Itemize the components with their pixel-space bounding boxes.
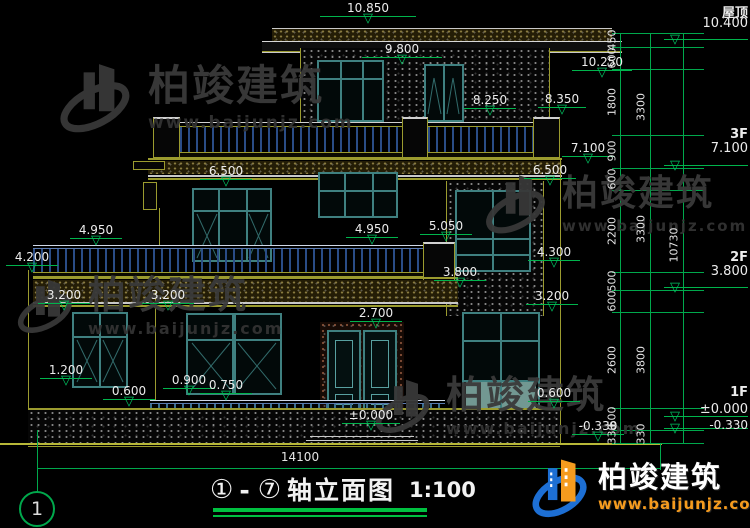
elevation-marker: 2.700▽ xyxy=(350,307,402,322)
dim-tick xyxy=(612,290,704,291)
slab-2f-topline xyxy=(148,158,562,160)
dim-value: 3800 xyxy=(635,346,648,374)
ground-line-2 xyxy=(28,446,560,447)
elevation-triangle-icon: ▽ xyxy=(397,53,407,66)
elevation-triangle-icon: ▽ xyxy=(367,233,377,246)
window-transom xyxy=(320,190,396,192)
watermark: 柏竣建筑 www.baijunjz.com xyxy=(16,272,283,342)
elevation-marker: 3.200▽ xyxy=(526,290,578,305)
elevation-marker: 9.800▽ xyxy=(362,43,442,58)
watermark-url: www.baijunjz.com xyxy=(88,319,283,338)
elevation-triangle-icon: ▽ xyxy=(221,389,231,402)
title-underline-thin xyxy=(213,515,427,517)
railing-pillar xyxy=(533,117,560,158)
elevation-triangle-icon: ▽ xyxy=(59,299,69,312)
elevation-triangle-icon: ▽ xyxy=(184,384,194,397)
wall-edge-line xyxy=(159,208,160,245)
elevation-triangle-icon: ▽ xyxy=(670,159,680,172)
elevation-marker: 1.200▽ xyxy=(40,364,92,379)
dim-value: 3300 xyxy=(635,215,648,243)
elevation-triangle-icon: ▽ xyxy=(371,317,381,330)
dim-value: 500 xyxy=(606,271,619,292)
level-label-1f: 1F xyxy=(698,385,748,400)
level-value-3f: 7.100▽ xyxy=(664,141,748,166)
dim-value: 330 xyxy=(635,424,648,445)
elevation-drawing-canvas: 柏竣建筑 www.baijunjz.com 柏竣建筑 www.baijunjz.… xyxy=(0,0,750,528)
elevation-triangle-icon: ▽ xyxy=(545,174,555,187)
elevation-marker: 3.200▽ xyxy=(142,289,194,304)
elevation-marker: 4.300▽ xyxy=(528,246,580,261)
watermark-url: www.baijunjz.com xyxy=(148,113,354,133)
drawing-title: ①-⑦轴立面图 1:100 xyxy=(210,477,476,503)
elevation-triangle-icon: ▽ xyxy=(670,422,680,435)
elevation-marker: 6.500▽ xyxy=(524,164,576,179)
window-transom xyxy=(457,254,529,256)
level-label-3f: 3F xyxy=(698,127,748,142)
dim-tick xyxy=(612,135,704,136)
axis-number: 1 xyxy=(31,498,43,520)
elevation-triangle-icon: ▽ xyxy=(670,33,680,46)
ground-line xyxy=(0,443,662,445)
level-value: -0.330 xyxy=(709,418,748,432)
elevation-triangle-icon: ▽ xyxy=(485,104,495,117)
elevation-triangle-icon: ▽ xyxy=(593,430,603,443)
elevation-marker: 4.950▽ xyxy=(346,223,398,238)
elevation-triangle-icon: ▽ xyxy=(549,256,559,269)
elevation-marker: 10.850▽ xyxy=(320,2,416,17)
elevation-triangle-icon: ▽ xyxy=(549,397,559,410)
level-value-2f: 3.800▽ xyxy=(664,264,748,288)
watermark-name: 柏竣建筑 xyxy=(562,176,747,212)
elevation-marker: 0.600▽ xyxy=(528,387,580,402)
level-value: ±0.000 xyxy=(700,402,748,417)
brand-logo: 柏竣建筑 www.baijunjz.com xyxy=(532,450,750,524)
dim-value: 600 xyxy=(606,48,619,69)
dim-tick xyxy=(612,312,704,313)
level-value-1f: ±0.000▽ xyxy=(664,402,748,417)
elevation-triangle-icon: ▽ xyxy=(221,175,231,188)
casement-diagonal-marks xyxy=(426,66,462,120)
brand-name: 柏竣建筑 xyxy=(598,463,750,492)
watermark-name: 柏竣建筑 xyxy=(148,65,354,107)
axis-circled-1: ① xyxy=(210,477,233,503)
dim-value: 330 xyxy=(606,424,619,445)
window-3f-right xyxy=(424,64,464,122)
elevation-triangle-icon: ▽ xyxy=(124,395,134,408)
dim-value: 900 xyxy=(606,141,619,162)
window-transom xyxy=(464,340,538,342)
door-panel xyxy=(335,340,353,388)
dim-value: 600 xyxy=(606,291,619,312)
window-2f-center xyxy=(318,172,398,218)
elevation-marker: 4.950▽ xyxy=(70,224,122,239)
axis-extension-line xyxy=(37,430,38,492)
elevation-marker: 8.250▽ xyxy=(464,94,516,109)
railing-2f-balusters xyxy=(33,249,423,272)
window-mullion xyxy=(362,62,364,120)
dim-value: 1800 xyxy=(606,88,619,116)
brand-logo-icon xyxy=(532,450,590,524)
level-value: 7.100 xyxy=(711,141,748,156)
elevation-marker: 0.600▽ xyxy=(103,385,155,400)
dim-value: 2600 xyxy=(606,346,619,374)
elevation-marker: 8.350▽ xyxy=(538,93,586,108)
elevation-triangle-icon: ▽ xyxy=(583,152,593,165)
dim-value: 3300 xyxy=(635,93,648,121)
watermark-url: www.baijunjz.com xyxy=(562,217,747,235)
dim-tick xyxy=(612,47,704,48)
elevation-marker: 0.750▽ xyxy=(200,379,252,394)
dim-value: 600 xyxy=(606,169,619,190)
elevation-triangle-icon: ▽ xyxy=(363,12,373,25)
axis-bubble-1: 1 xyxy=(19,491,55,527)
elevation-marker: 5.050▽ xyxy=(420,220,472,235)
level-value-roof: 10.400▽ xyxy=(664,16,748,40)
title-text: 轴立面图 xyxy=(287,478,395,503)
elevation-triangle-icon: ▽ xyxy=(91,234,101,247)
elevation-triangle-icon: ▽ xyxy=(547,300,557,313)
title-scale: 1:100 xyxy=(409,480,476,501)
elevation-triangle-icon: ▽ xyxy=(441,230,451,243)
brand-url: www.baijunjz.com xyxy=(598,497,750,512)
elevation-marker: 3.800▽ xyxy=(434,266,486,281)
watermark-logo-icon xyxy=(374,372,438,442)
elevation-marker: ±0.000▽ xyxy=(342,409,400,424)
elevation-marker: 10.250▽ xyxy=(572,56,632,71)
level-value-1f-below: -0.330▽ xyxy=(664,418,748,429)
elevation-triangle-icon: ▽ xyxy=(557,103,567,116)
railing-pillar xyxy=(402,117,428,158)
window-mullion xyxy=(372,174,374,216)
eave-end-cap xyxy=(133,161,165,170)
watermark-logo-icon xyxy=(484,168,554,242)
dim-value: 10730 xyxy=(668,228,681,263)
elevation-triangle-icon: ▽ xyxy=(455,276,465,289)
elevation-triangle-icon: ▽ xyxy=(163,299,173,312)
roof-hatch-band xyxy=(272,29,612,41)
elevation-triangle-icon: ▽ xyxy=(27,261,37,274)
level-value: 10.400 xyxy=(703,16,749,31)
elevation-triangle-icon: ▽ xyxy=(670,281,680,294)
elevation-triangle-icon: ▽ xyxy=(366,419,376,432)
watermark-logo-icon xyxy=(58,58,140,140)
eave-corbel xyxy=(143,182,157,210)
elevation-marker: 4.200▽ xyxy=(6,251,58,266)
watermark: 柏竣建筑 www.baijunjz.com xyxy=(58,58,354,140)
level-value: 3.800 xyxy=(711,264,748,279)
level-label-2f: 2F xyxy=(698,250,748,265)
dim-tick xyxy=(612,443,704,444)
axis-circled-7: ⑦ xyxy=(258,477,281,503)
elevation-marker: 3.200▽ xyxy=(38,289,90,304)
elevation-marker: 6.500▽ xyxy=(200,165,252,180)
total-width-dim: 14100 xyxy=(268,450,332,464)
watermark-logo-icon xyxy=(16,272,80,342)
dim-value: 2200 xyxy=(606,217,619,245)
elevation-triangle-icon: ▽ xyxy=(61,374,71,387)
title-dash: - xyxy=(239,478,251,503)
window-mullion xyxy=(344,174,346,216)
title-underline-thick xyxy=(213,508,427,512)
